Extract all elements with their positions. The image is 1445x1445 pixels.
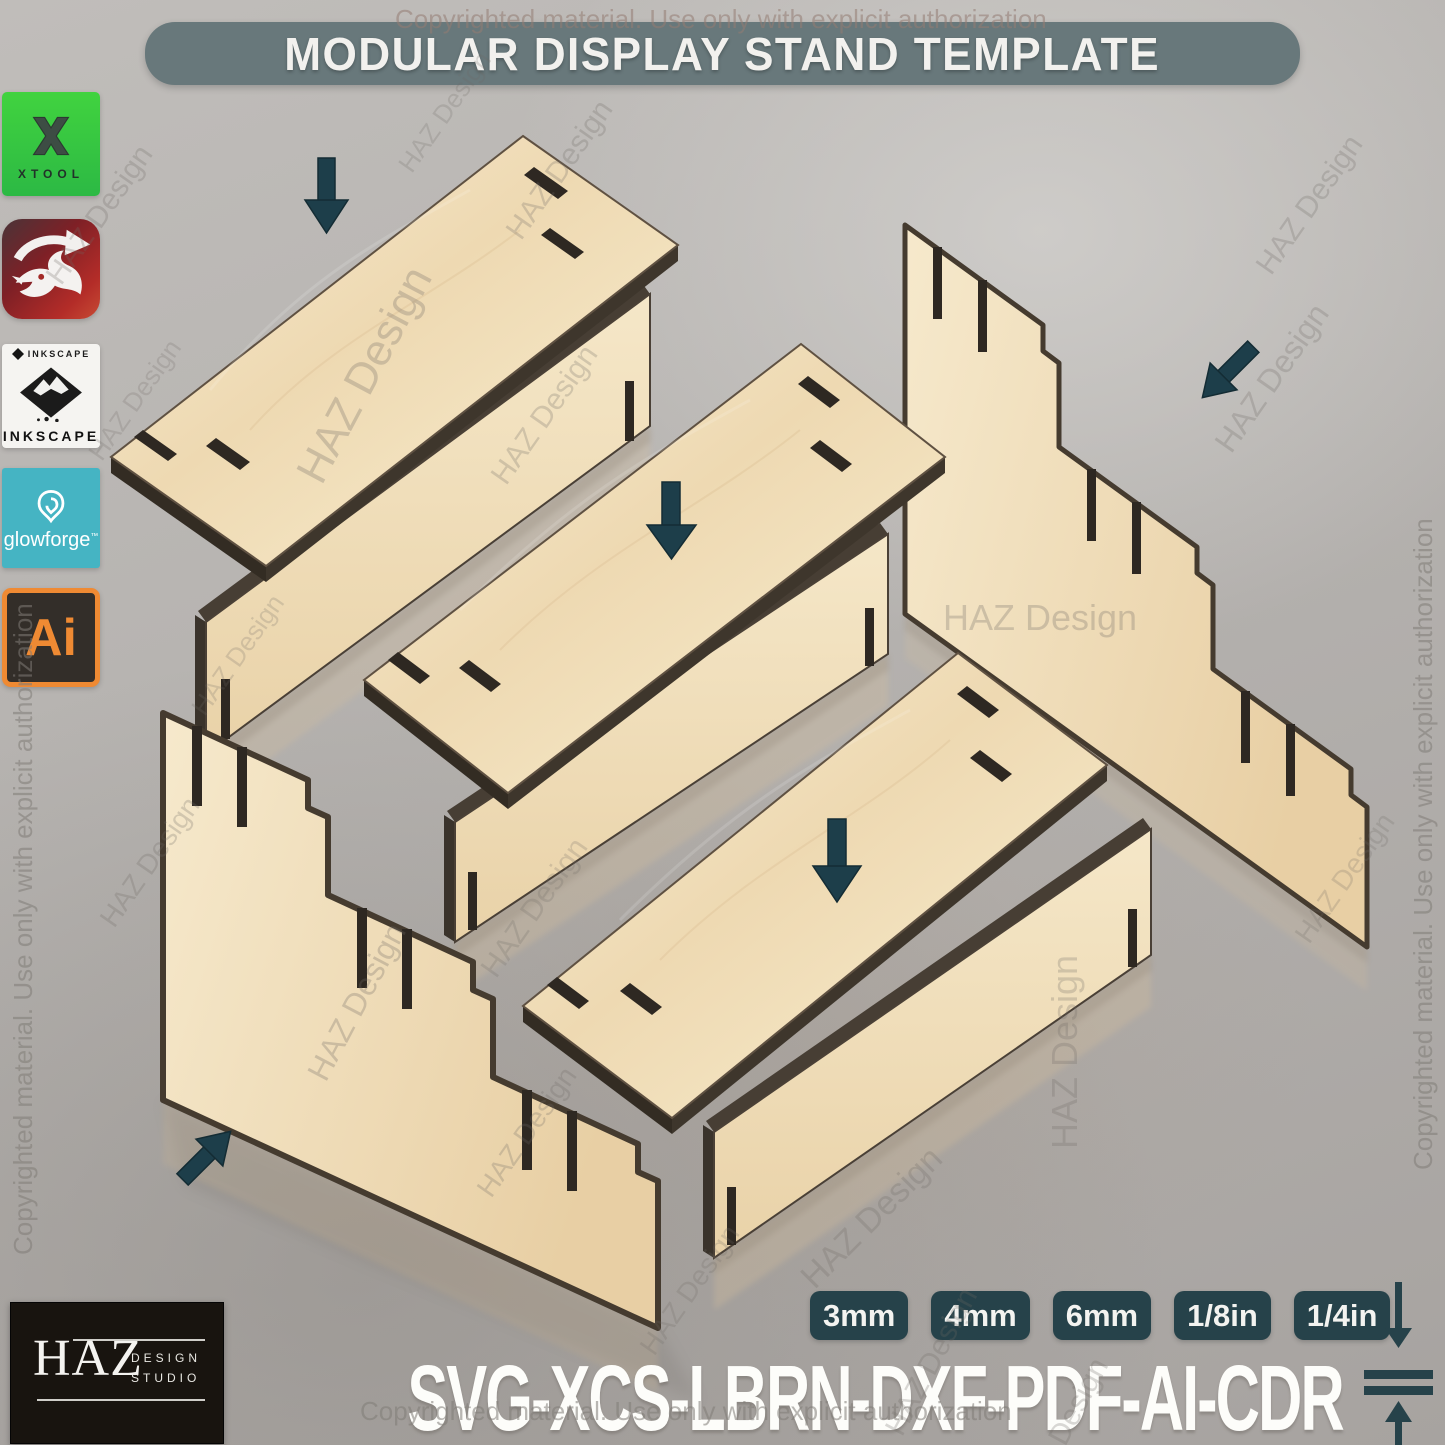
xtool-label: XTOOL	[18, 167, 84, 181]
haz-design-studio-logo: HAZ DESIGN STUDIO	[10, 1302, 224, 1444]
exploded-view-scene	[0, 0, 1445, 1445]
glowforge-label: glowforge	[4, 529, 91, 551]
product-listing-image: MODULAR DISPLAY STAND TEMPLATE XTOOL INK…	[0, 0, 1445, 1445]
badge-3mm: 3mm	[810, 1291, 908, 1340]
inkscape-diamond-glyph	[14, 366, 88, 422]
lightburn-dragon-glyph	[2, 219, 100, 319]
inkscape-logo-icon: INKSCAPE INKSCAPE	[2, 344, 100, 448]
badge-6mm: 6mm	[1053, 1291, 1151, 1340]
logo-rule-bottom	[37, 1399, 205, 1401]
copyright-watermark-right: Copyrighted material. Use only with expl…	[1408, 518, 1439, 1170]
material-thickness-icon	[1358, 1282, 1440, 1445]
glowforge-tm: ™	[90, 531, 98, 540]
thickness-badges-row: 3mm 4mm 6mm 1/8in 1/4in	[810, 1291, 1390, 1340]
inkscape-bottom-label: INKSCAPE	[3, 428, 99, 444]
arrow-down-left-icon	[1189, 333, 1267, 411]
lightburn-logo-icon	[2, 219, 100, 319]
copyright-watermark-top: Copyrighted material. Use only with expl…	[395, 4, 1047, 35]
xtool-x-glyph	[21, 107, 81, 165]
inkscape-mini-diamond-icon	[12, 348, 24, 360]
copyright-watermark-bottom: Copyrighted material. Use only with expl…	[360, 1396, 1012, 1427]
badge-1-8in: 1/8in	[1174, 1291, 1271, 1340]
inkscape-top-label: INKSCAPE	[28, 349, 91, 359]
logo-brand-name: HAZ	[33, 1333, 143, 1385]
glowforge-logo-icon: glowforge™	[2, 468, 100, 568]
copyright-watermark-left: Copyrighted material. Use only with expl…	[8, 603, 39, 1255]
arrow-down-icon-1	[305, 158, 348, 233]
badge-4mm: 4mm	[931, 1291, 1029, 1340]
logo-subtitle-design: DESIGN	[131, 1351, 201, 1365]
glowforge-pin-glyph	[28, 485, 74, 531]
xtool-logo-icon: XTOOL	[2, 92, 100, 196]
logo-subtitle-studio: STUDIO	[131, 1371, 200, 1385]
